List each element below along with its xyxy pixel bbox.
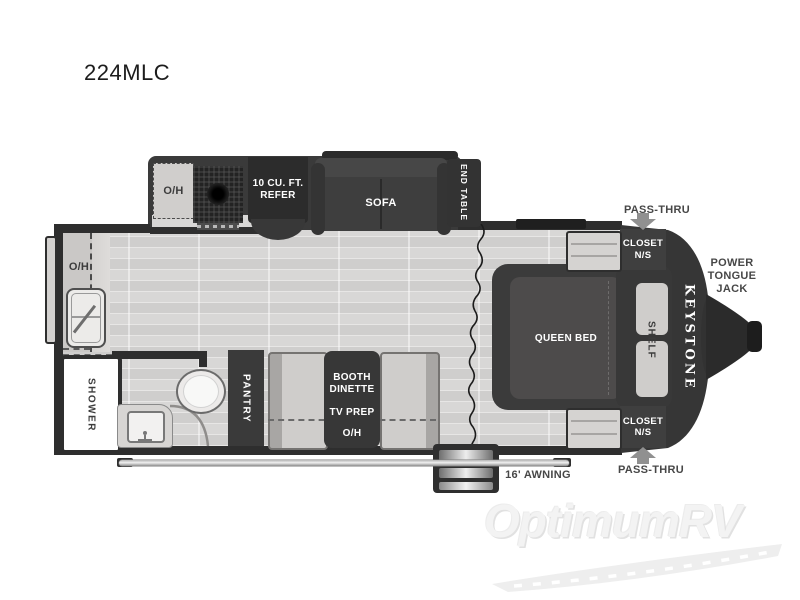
bathroom-wall: [112, 351, 207, 359]
shelf-label: SHELF: [646, 321, 657, 359]
dresser-top: [566, 231, 622, 272]
pass-thru-down-arrow-icon: [630, 219, 656, 230]
shower-stall: SHOWER: [60, 355, 122, 454]
vanity-sink-icon: [127, 411, 165, 443]
dresser-bottom: [566, 408, 622, 450]
bathroom-wall-stub: [199, 351, 207, 367]
pass-thru-top-label: PASS-THRU: [612, 204, 702, 216]
stove-icon: [193, 166, 243, 223]
stove-vent: [197, 223, 239, 230]
dinette-overhead-label: O/H: [324, 428, 380, 439]
sofa-label: SOFA: [311, 197, 451, 209]
galley-counter-dash: [63, 348, 90, 350]
pass-thru-bottom-label: PASS-THRU: [606, 464, 696, 476]
queen-bed-label: QUEEN BED: [535, 333, 597, 344]
toilet-icon: [176, 369, 226, 414]
awning-bar: [119, 460, 569, 466]
end-table: END TABLE: [447, 159, 481, 227]
awning-label: 16' AWNING: [498, 469, 578, 481]
shower-label: SHOWER: [86, 378, 97, 432]
vanity: [117, 404, 173, 448]
pass-thru-bottom-arrow-stem: [637, 457, 649, 464]
watermark-road-icon: [490, 540, 790, 592]
dinette-label: BOOTH DINETTE: [324, 372, 380, 396]
closet-top: CLOSET N/S: [620, 229, 666, 270]
top-wall-left: [54, 224, 150, 233]
closet-bottom: CLOSET N/S: [620, 406, 666, 448]
kitchen-overhead-cabinet: O/H: [153, 163, 194, 219]
closet-top-label: CLOSET N/S: [623, 238, 663, 261]
rear-window: [45, 236, 57, 344]
tongue-jack-tip: [747, 321, 762, 352]
tv-prep-label: TV PREP: [324, 407, 380, 418]
refrigerator: 10 CU. FT. REFER: [248, 157, 308, 223]
kitchen-overhead-label: O/H: [163, 185, 183, 197]
model-label: 224MLC: [84, 60, 170, 86]
closet-bottom-label: CLOSET N/S: [623, 416, 663, 439]
dinette-bench-right: [380, 352, 440, 450]
pantry-cabinet: PANTRY: [228, 350, 264, 446]
tongue-jack-icon: [706, 294, 752, 380]
dinette-bench-left: [268, 352, 328, 450]
watermark: OptimumRV: [484, 494, 796, 590]
end-table-label: END TABLE: [459, 164, 469, 221]
galley-overhead-label: O/H: [62, 261, 96, 273]
galley-sink-icon: [66, 288, 106, 348]
refrigerator-label: 10 CU. FT. REFER: [253, 178, 304, 203]
pantry-label: PANTRY: [241, 374, 252, 423]
bedroom-window: [516, 219, 586, 229]
power-tongue-jack-label: POWER TONGUE JACK: [694, 257, 770, 297]
entry-steps: [433, 444, 499, 493]
keystone-badge: KEYSTONE: [682, 284, 697, 391]
curtain-divider: [450, 224, 496, 458]
queen-bed-mattress: QUEEN BED: [510, 277, 622, 399]
rv-floorplan-page: OptimumRV 224MLC O/H 10 CU. FT. REFER O/…: [0, 0, 800, 600]
sofa: SOFA: [311, 155, 451, 237]
